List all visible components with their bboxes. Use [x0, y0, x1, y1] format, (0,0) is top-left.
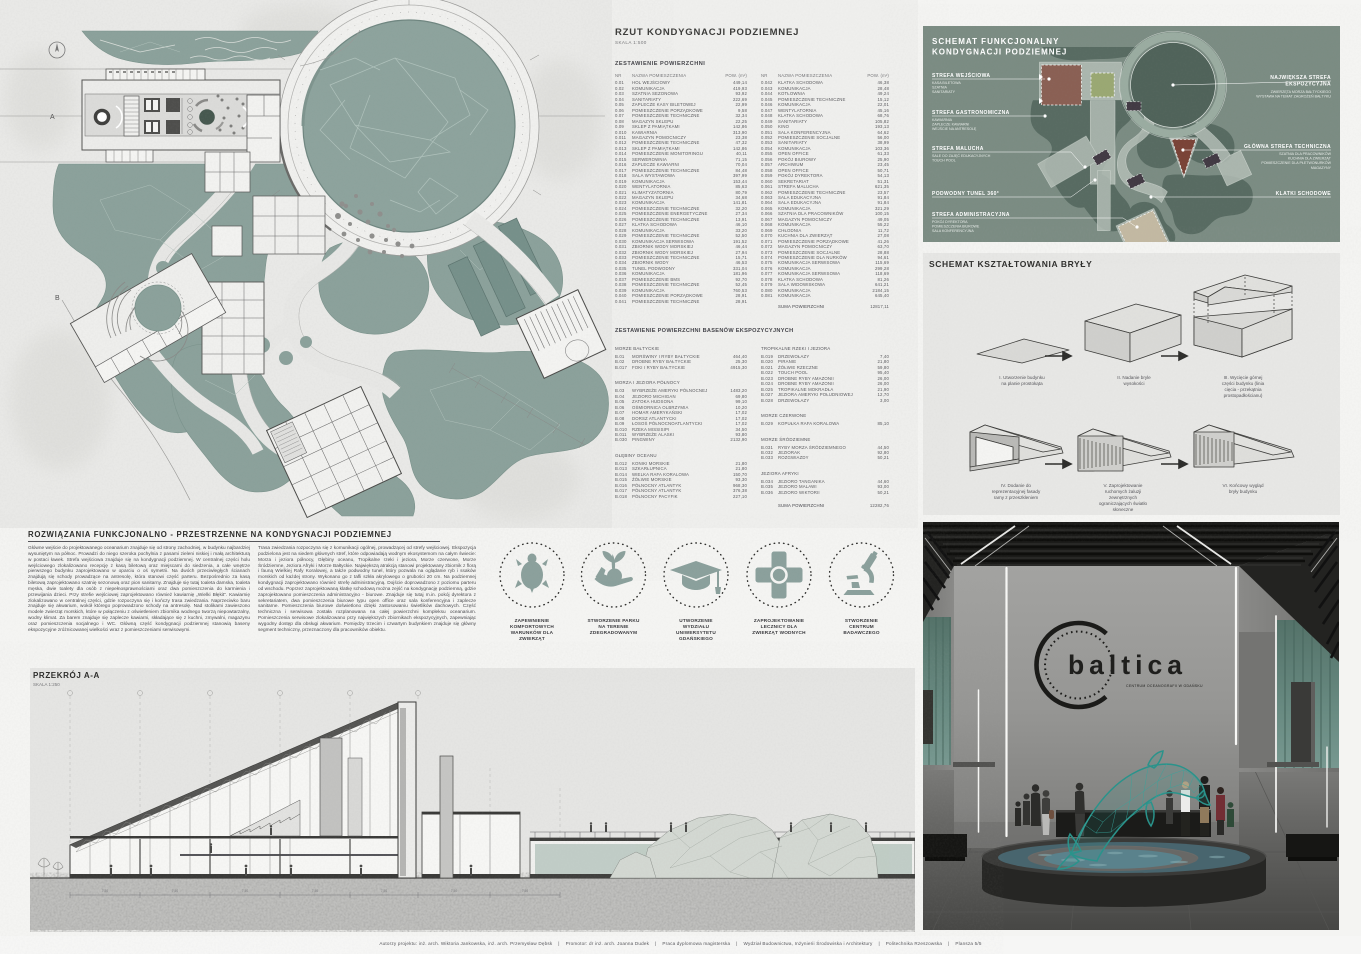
svg-text:III. Wycięcie górnej: III. Wycięcie górnej	[1224, 375, 1263, 380]
svg-text:STREFA GASTRONOMICZNA: STREFA GASTRONOMICZNA	[932, 110, 1010, 116]
svg-text:KONDYGNACJI PODZIEMNEJ: KONDYGNACJI PODZIEMNEJ	[932, 48, 1067, 57]
svg-text:SCHEMAT FUNKCJONALNY: SCHEMAT FUNKCJONALNY	[932, 37, 1059, 46]
svg-text:UTWORZENIE: UTWORZENIE	[679, 618, 713, 623]
svg-text:MAGAZYNY: MAGAZYNY	[1311, 166, 1332, 170]
svg-text:SZATNIA DLA PRACOWNIKÓW: SZATNIA DLA PRACOWNIKÓW	[1279, 151, 1331, 156]
svg-text:POMIESZCZENIE DLA PŁETWONURKÓW: POMIESZCZENIE DLA PŁETWONURKÓW	[1261, 160, 1331, 165]
svg-text:7,50: 7,50	[312, 889, 318, 893]
svg-text:7,50: 7,50	[242, 889, 248, 893]
svg-text:reprezentacyjnej fasady: reprezentacyjnej fasady	[992, 489, 1041, 494]
svg-text:KLATKI SCHODOWE: KLATKI SCHODOWE	[1276, 191, 1332, 197]
svg-text:7,50: 7,50	[451, 889, 457, 893]
svg-text:WYDZIAŁU: WYDZIAŁU	[683, 624, 710, 629]
svg-text:ZWIERZĄT: ZWIERZĄT	[519, 636, 545, 641]
svg-text:SANITARIATY: SANITARIATY	[932, 90, 956, 94]
svg-text:LECZNICY DLA: LECZNICY DLA	[761, 624, 798, 629]
svg-text:NAJWIĘKSZA STREFA: NAJWIĘKSZA STREFA	[1270, 75, 1331, 81]
svg-text:ZAPLECZE KAWIARNI: ZAPLECZE KAWIARNI	[932, 123, 969, 127]
svg-text:WYSTAWA NA TEMAT ZAGROŻEŃ BAŁT: WYSTAWA NA TEMAT ZAGROŻEŃ BAŁTYKU	[1256, 94, 1331, 99]
svg-text:STREFA WEJŚCIOWA: STREFA WEJŚCIOWA	[932, 72, 990, 79]
svg-text:ramy z przeszkleniem: ramy z przeszkleniem	[994, 495, 1039, 500]
svg-text:I. Utworzenie budynku: I. Utworzenie budynku	[999, 375, 1045, 380]
svg-text:A: A	[50, 114, 55, 121]
svg-text:na planie prostokąta: na planie prostokąta	[1001, 381, 1043, 386]
svg-text:II. Nadanie bryle: II. Nadanie bryle	[1117, 375, 1151, 380]
svg-text:wysokości: wysokości	[1124, 381, 1145, 386]
svg-text:7,50: 7,50	[522, 889, 528, 893]
svg-text:PODWODNY TUNEL 360°: PODWODNY TUNEL 360°	[932, 191, 999, 197]
svg-text:GDAŃSKIEGO: GDAŃSKIEGO	[679, 634, 713, 641]
svg-text:WARUNKÓW DLA: WARUNKÓW DLA	[511, 628, 554, 635]
svg-text:SALE DO ZAJĘĆ EDUKACYJNYCH: SALE DO ZAJĘĆ EDUKACYJNYCH	[932, 153, 991, 158]
svg-text:UNIWERSYTETU: UNIWERSYTETU	[676, 630, 716, 635]
svg-text:zewnętrznych: zewnętrznych	[1109, 495, 1138, 500]
svg-text:prostopadłościanu): prostopadłościanu)	[1224, 393, 1263, 398]
svg-text:SKALA 1:250: SKALA 1:250	[33, 682, 60, 687]
svg-text:TOUCH POOL: TOUCH POOL	[932, 159, 956, 163]
svg-text:KUCHNIA DLA ZWIERZĄT: KUCHNIA DLA ZWIERZĄT	[1288, 157, 1332, 161]
svg-text:części budynku (linia: części budynku (linia	[1222, 381, 1265, 386]
svg-text:IV. Dodanie do: IV. Dodanie do	[1001, 483, 1031, 488]
svg-text:CENTRUM OCEANOGRAFII W GDAŃSKU: CENTRUM OCEANOGRAFII W GDAŃSKU	[1126, 684, 1203, 688]
svg-text:KAWIARNIA: KAWIARNIA	[932, 118, 953, 122]
svg-text:EKSPOZYCYJNA: EKSPOZYCYJNA	[1285, 82, 1331, 88]
svg-text:7,50: 7,50	[172, 889, 178, 893]
svg-text:7,50: 7,50	[381, 889, 387, 893]
svg-text:słoneczne: słoneczne	[1113, 507, 1134, 512]
svg-text:VI. Końcowy wygląd: VI. Końcowy wygląd	[1222, 483, 1264, 488]
svg-text:CENTRUM: CENTRUM	[849, 624, 874, 629]
svg-text:ZAPEWNIENIE: ZAPEWNIENIE	[515, 618, 550, 623]
svg-text:ZWIERZĄT WODNYCH: ZWIERZĄT WODNYCH	[752, 630, 806, 635]
svg-text:ZAPROJEKTOWANIE: ZAPROJEKTOWANIE	[754, 618, 804, 623]
svg-text:POKÓJ DYREKTORA: POKÓJ DYREKTORA	[932, 219, 968, 224]
svg-text:cięcia - przekątnia: cięcia - przekątnia	[1224, 387, 1261, 392]
svg-text:baltica: baltica	[1068, 650, 1187, 680]
svg-text:KOMFORTOWYCH: KOMFORTOWYCH	[510, 624, 554, 629]
svg-text:V. Zaprojektowanie: V. Zaprojektowanie	[1104, 483, 1143, 488]
svg-text:STWORZENIE: STWORZENIE	[845, 618, 878, 623]
svg-text:bryły budynku: bryły budynku	[1229, 489, 1258, 494]
svg-text:ograniczających światło: ograniczających światło	[1099, 501, 1148, 506]
svg-text:SALA KONFERENCYJNA: SALA KONFERENCYJNA	[932, 229, 974, 233]
svg-text:STWORZENIE PARKU: STWORZENIE PARKU	[587, 618, 639, 623]
svg-text:GŁÓWNA STREFA TECHNICZNA: GŁÓWNA STREFA TECHNICZNA	[1244, 142, 1331, 150]
svg-text:ruchomych żaluzji: ruchomych żaluzji	[1105, 489, 1142, 494]
svg-text:BADAWCZEGO: BADAWCZEGO	[843, 630, 880, 635]
svg-text:ZWIERZĘTA MORZA BAŁTYCKIEGO: ZWIERZĘTA MORZA BAŁTYCKIEGO	[1271, 90, 1332, 94]
svg-text:STREFA MALUCHA: STREFA MALUCHA	[932, 146, 984, 152]
svg-text:7,50: 7,50	[102, 889, 108, 893]
svg-text:POMIESZCZENIA BIUROWE: POMIESZCZENIA BIUROWE	[932, 225, 980, 229]
svg-text:ZDEGRADOWANYM: ZDEGRADOWANYM	[590, 630, 637, 635]
svg-text:STREFA ADMINISTRACYJNA: STREFA ADMINISTRACYJNA	[932, 212, 1010, 218]
svg-text:SCHEMAT KSZTAŁTOWANIA BRYŁY: SCHEMAT KSZTAŁTOWANIA BRYŁY	[929, 259, 1092, 269]
svg-text:NA TERENIE: NA TERENIE	[598, 624, 628, 629]
svg-text:SZATNIA: SZATNIA	[932, 86, 948, 90]
svg-text:B: B	[55, 295, 60, 302]
svg-text:WEJŚCIE NA ANTRESOLĘ: WEJŚCIE NA ANTRESOLĘ	[932, 126, 977, 131]
svg-text:PRZEKRÓJ A-A: PRZEKRÓJ A-A	[33, 671, 100, 680]
svg-text:KASA BILETOWA: KASA BILETOWA	[932, 81, 961, 85]
